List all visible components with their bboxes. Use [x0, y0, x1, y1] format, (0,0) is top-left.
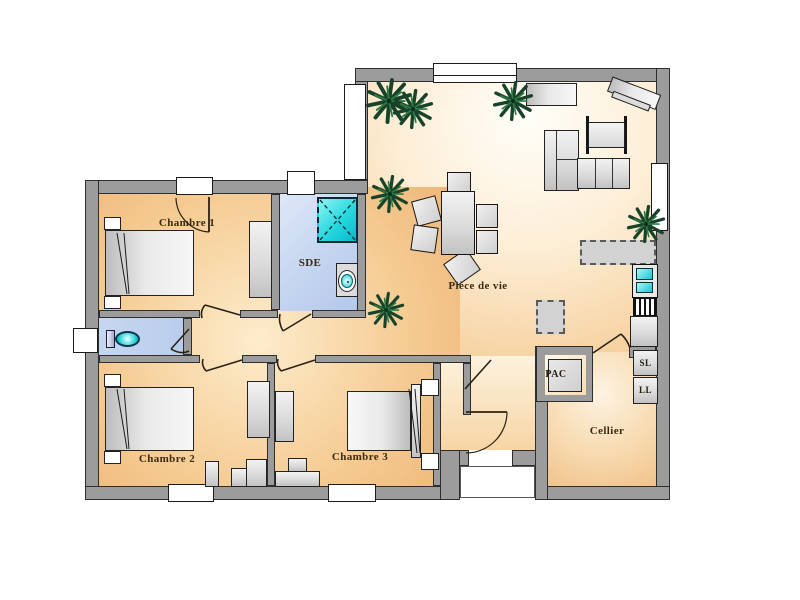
wall-top-bedroom-wing [85, 180, 368, 194]
console-table [586, 116, 627, 154]
room-label-cellier: Cellier [572, 425, 642, 437]
nightstand [421, 379, 439, 396]
dining-chair [447, 172, 471, 193]
room-label-chambre1: Chambre 1 [142, 217, 232, 229]
nightstand [104, 374, 121, 387]
sideboard [526, 83, 577, 106]
window-living-top [433, 63, 517, 83]
wall-corridor-bottom-b [242, 355, 277, 363]
wall-ch1-sde [271, 194, 280, 310]
dining-table [441, 191, 475, 255]
window-chambre1 [176, 177, 213, 195]
equipment-label-ll: LL [633, 385, 658, 395]
wall-entry-stub [440, 450, 460, 500]
dresser [288, 458, 307, 472]
dresser [246, 459, 267, 487]
wall-corridor-bottom-c [315, 355, 471, 363]
room-label-piece-de-vie: Pièce de vie [433, 280, 523, 292]
sofa-horizontal [577, 158, 630, 189]
shower-icon [317, 197, 358, 243]
wall-bottom-bedroom-wing [85, 486, 460, 500]
bed [105, 230, 194, 296]
bed [347, 391, 411, 451]
bed-headboard [411, 384, 421, 458]
kitchen-counter-dashed [580, 240, 656, 265]
kitchen-cooktop [633, 298, 657, 316]
wall-right [656, 68, 670, 500]
sink-basin [636, 282, 653, 293]
wall-corridor-top-c [312, 310, 366, 318]
wall-corridor-top-a [99, 310, 200, 318]
dresser [231, 468, 247, 487]
sink-basin [636, 268, 653, 280]
window-chambre3 [328, 484, 376, 502]
wall-entry-b [512, 450, 536, 466]
floor-plan: Chambre 1 SDE Pièce de vie Chambre 2 Cha… [0, 0, 800, 600]
entry-porch [460, 466, 535, 498]
toilet-icon [106, 328, 142, 350]
wall-corridor-bottom-a [99, 355, 200, 363]
wardrobe [247, 381, 270, 438]
entry-hall-floor [440, 356, 540, 458]
wall-wc-right [183, 318, 192, 355]
wall-entry-nook [463, 363, 471, 415]
window-living-right [651, 163, 668, 231]
kitchen-low-counter [630, 316, 658, 347]
wall-bottom-right [535, 486, 670, 500]
sofa-vertical [544, 130, 579, 191]
room-label-chambre3: Chambre 3 [315, 451, 405, 463]
window-sde [287, 171, 315, 195]
entry-door-opening [469, 450, 512, 466]
nightstand [104, 217, 121, 230]
kitchen-sink-unit [632, 264, 658, 298]
wall-corridor-top-b [240, 310, 278, 318]
equipment-label-sl: SL [633, 358, 658, 368]
nightstand [104, 451, 121, 464]
wardrobe [249, 221, 272, 298]
kitchen-column-dashed [536, 300, 565, 334]
room-label-chambre2: Chambre 2 [122, 453, 212, 465]
window-living-left [344, 84, 366, 180]
bed [105, 387, 194, 451]
wardrobe [275, 391, 294, 442]
equipment-label-pac: PAC [540, 369, 572, 380]
wall-sde-right [357, 194, 366, 318]
nightstand [421, 453, 439, 470]
dining-chair [410, 224, 438, 253]
room-label-sde: SDE [280, 257, 340, 269]
window-wc [73, 328, 98, 353]
nightstand [104, 296, 121, 309]
dresser [275, 471, 320, 487]
dining-chair [476, 204, 498, 228]
dining-chair [476, 230, 498, 254]
